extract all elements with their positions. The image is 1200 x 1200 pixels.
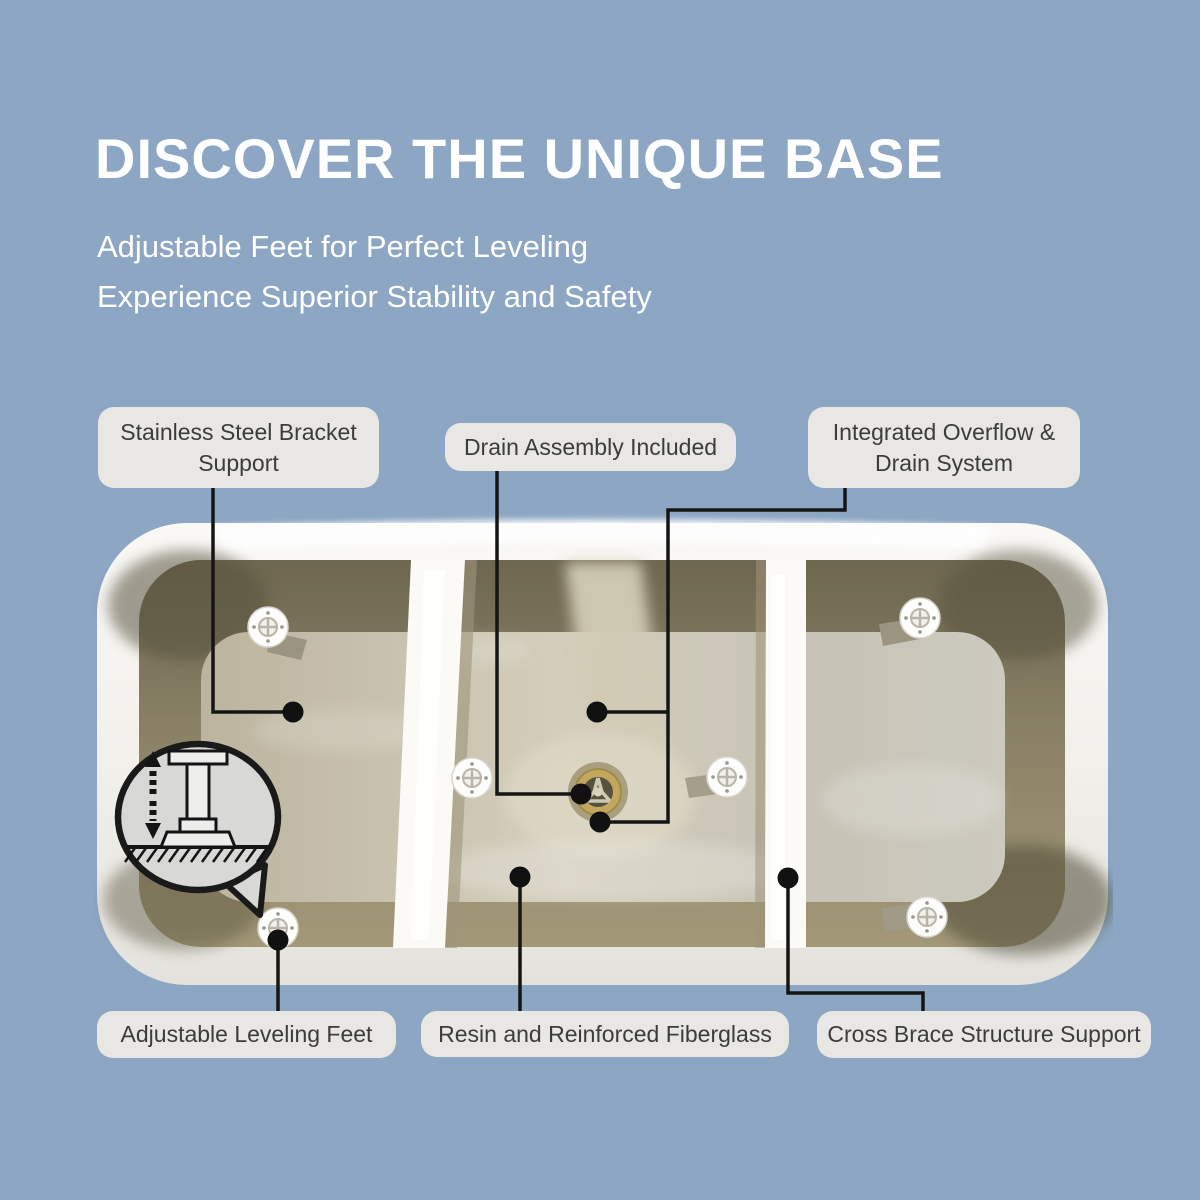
- leader-line-dot: [587, 702, 608, 723]
- leader-drain-assembly: [497, 470, 578, 794]
- page-subtitle: Adjustable Feet for Perfect Leveling Exp…: [97, 222, 857, 322]
- subtitle-line-2: Experience Superior Stability and Safety: [97, 272, 857, 322]
- leader-stainless-bracket: [213, 487, 290, 712]
- callout-resin-fiberglass: Resin and Reinforced Fiberglass: [421, 1011, 789, 1057]
- callout-drain-assembly: Drain Assembly Included: [445, 423, 736, 471]
- leader-line-dot: [510, 867, 531, 888]
- subtitle-line-1: Adjustable Feet for Perfect Leveling: [97, 222, 857, 272]
- page-background: { "background_color": "#8CA6C3", "header…: [0, 0, 1200, 1200]
- leader-line-dot: [590, 812, 611, 833]
- callout-overflow-drain: Integrated Overflow & Drain System: [808, 407, 1080, 488]
- leader-line-dot: [283, 702, 304, 723]
- leader-line-dot: [778, 868, 799, 889]
- callout-stainless-bracket: Stainless Steel Bracket Support: [98, 407, 379, 488]
- leader-line-dot: [571, 784, 592, 805]
- page-title: DISCOVER THE UNIQUE BASE: [95, 126, 1155, 191]
- callout-leveling-feet: Adjustable Leveling Feet: [97, 1011, 396, 1058]
- adjustable-foot-bubble-icon: [105, 735, 295, 945]
- leader-overflow-main: [603, 487, 845, 822]
- callout-cross-brace: Cross Brace Structure Support: [817, 1011, 1151, 1058]
- leader-cross-brace: [788, 879, 923, 1011]
